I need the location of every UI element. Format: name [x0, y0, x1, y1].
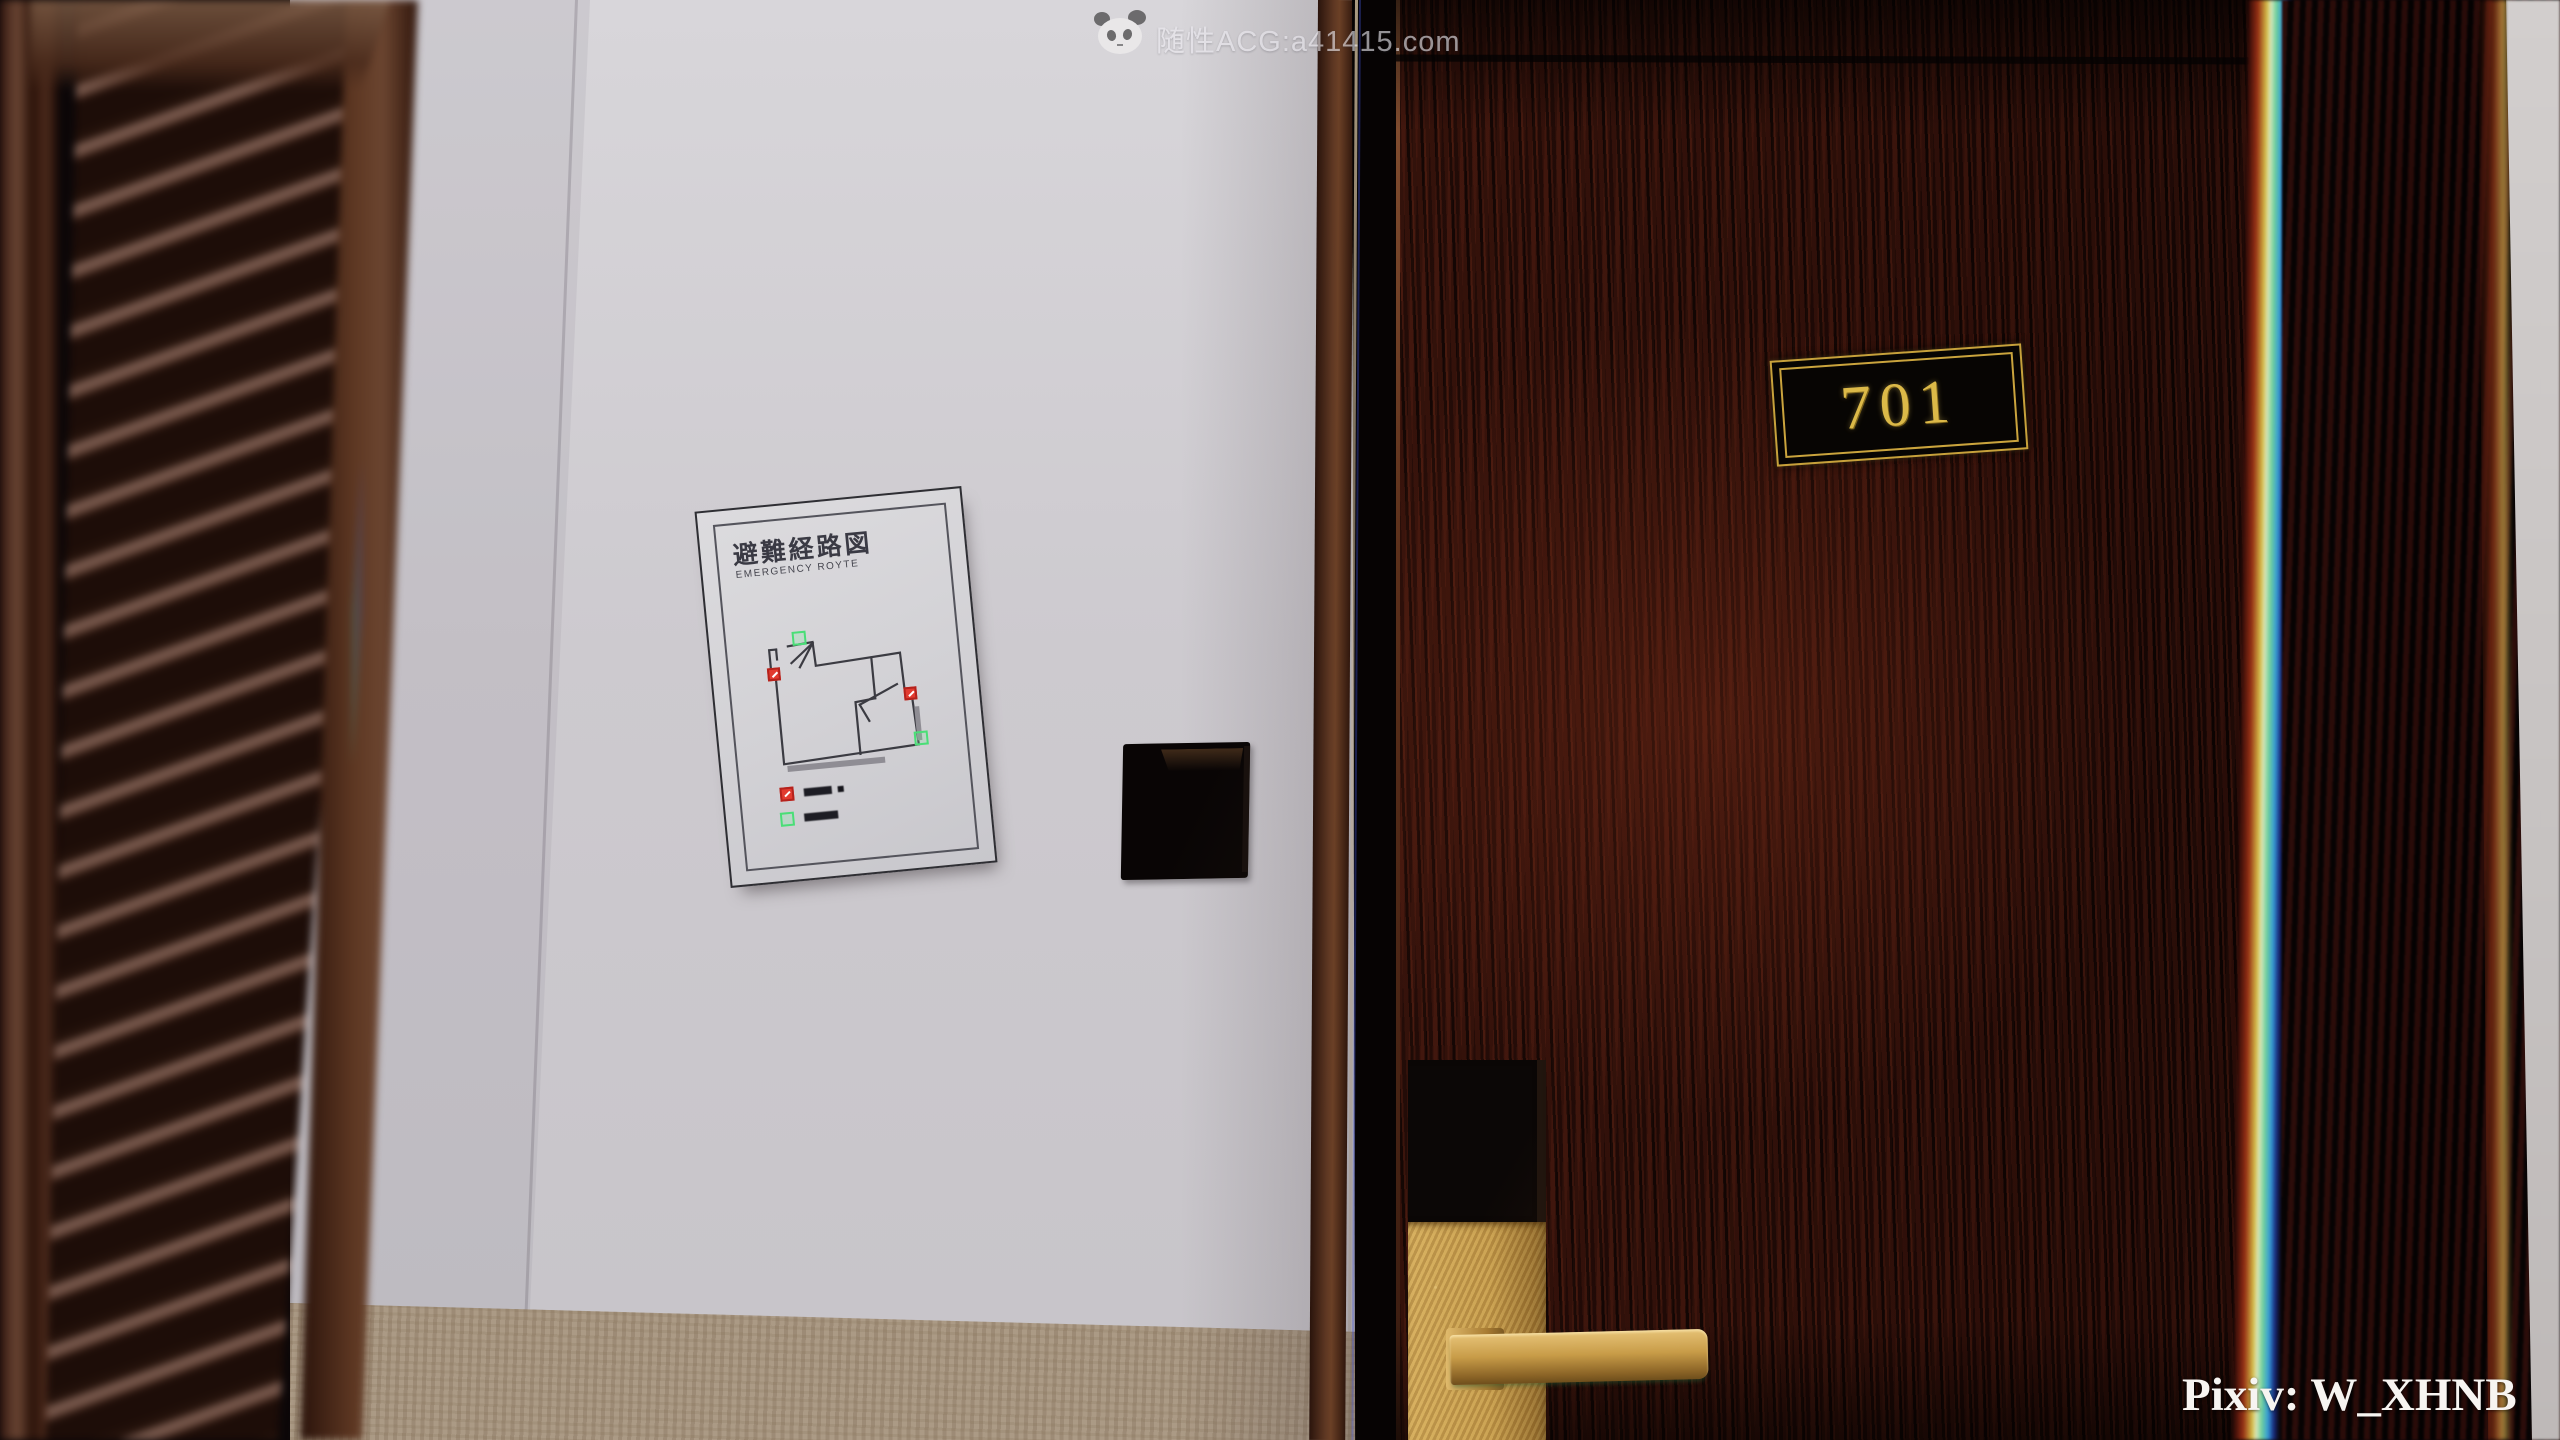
legend-alarm-label-blurred: [804, 786, 833, 797]
site-watermark: 随性ACG:a41415.com: [1094, 6, 1514, 58]
alarm-marker-right: [903, 686, 917, 700]
legend-exit-label-blurred: [804, 810, 839, 821]
evacuation-route-sign: 避難経路図 EMERGENCY ROYTE: [695, 486, 998, 888]
wall-key-card-box[interactable]: [1121, 742, 1250, 880]
card-box-reflection: [1161, 748, 1243, 771]
legend-alarm-dot: [837, 786, 844, 793]
door-lock-assembly[interactable]: [1408, 1060, 1546, 1440]
door-left-edge-highlight: [1396, 0, 1400, 1440]
floor-plan-drawing: [697, 488, 1000, 890]
room-number: 701: [1838, 366, 1960, 445]
site-watermark-text: 随性ACG:a41415.com: [1156, 18, 1461, 60]
plate-inner-border: 701: [1779, 352, 2019, 458]
door-handle[interactable]: [1449, 1329, 1708, 1385]
closet-top-rail: [30, 0, 390, 90]
reader-side-edge: [1537, 1060, 1546, 1222]
door-top-shadow: [1396, 0, 2264, 130]
legend-exit-swatch: [780, 812, 795, 827]
key-card-reader[interactable]: [1408, 1060, 1546, 1222]
closet-frame-left: [0, 0, 58, 1440]
legend-alarm-swatch: [779, 787, 794, 802]
louvered-closet-door[interactable]: [0, 0, 430, 1440]
hotel-corridor-scene: 避難経路図 EMERGENCY ROYTE: [0, 0, 2560, 1440]
alarm-marker-left: [767, 667, 781, 681]
panda-logo-icon: [1094, 10, 1146, 54]
room-number-plate: 701: [1770, 343, 2029, 466]
exit-marker-top: [791, 631, 806, 646]
exit-marker-bottom: [914, 730, 929, 745]
pixiv-credit: Pixiv: W_XHNB: [2182, 1368, 2517, 1422]
